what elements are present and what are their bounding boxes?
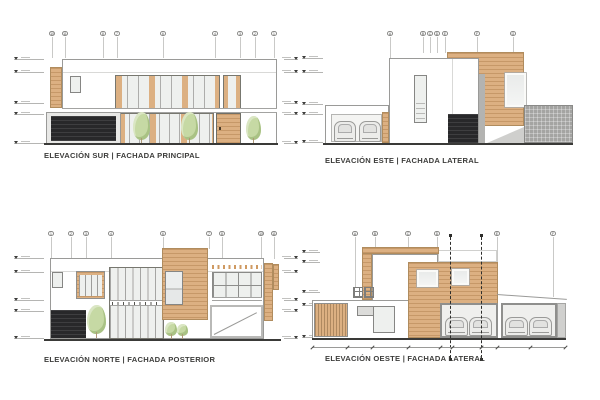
grid-bubble-label: C bbox=[405, 231, 411, 237]
ground-line bbox=[312, 338, 566, 340]
garage-roof-line bbox=[497, 294, 567, 300]
rear-parapet-outline bbox=[438, 250, 497, 262]
wood-roof-cap bbox=[362, 247, 439, 254]
louvered-gate bbox=[314, 303, 348, 337]
grid-bubble-label: F bbox=[550, 231, 556, 237]
elevation-west: ABCDEF bbox=[0, 0, 600, 400]
wood-volume-window bbox=[417, 270, 438, 287]
pergola-grid-icon bbox=[364, 287, 374, 298]
car-icon bbox=[505, 317, 528, 336]
elevation-sheet: 10118764321 ELEVACIÓN S bbox=[0, 0, 600, 400]
car-icon bbox=[529, 317, 552, 336]
grid-leader-line bbox=[497, 237, 498, 263]
car-icon bbox=[445, 317, 468, 336]
level-marker-icon bbox=[302, 292, 320, 293]
wood-volume-window bbox=[452, 269, 469, 285]
grid-leader-line bbox=[355, 237, 356, 288]
level-marker-icon bbox=[302, 262, 320, 263]
end-pier bbox=[557, 303, 566, 338]
dimension-tick bbox=[563, 345, 567, 349]
level-marker-icon bbox=[302, 252, 320, 253]
grid-bubble-label: A bbox=[352, 231, 358, 237]
grid-bubble-label: B bbox=[372, 231, 378, 237]
grid-bubble-label: E bbox=[494, 231, 500, 237]
grid-bubble-label: D bbox=[434, 231, 440, 237]
grid-leader-line bbox=[553, 237, 554, 297]
ground-window bbox=[373, 306, 395, 333]
drawing-title-west: ELEVACIÓN OESTE | FACHADA LATERAL bbox=[325, 354, 485, 363]
pergola-grid-icon bbox=[353, 287, 363, 298]
